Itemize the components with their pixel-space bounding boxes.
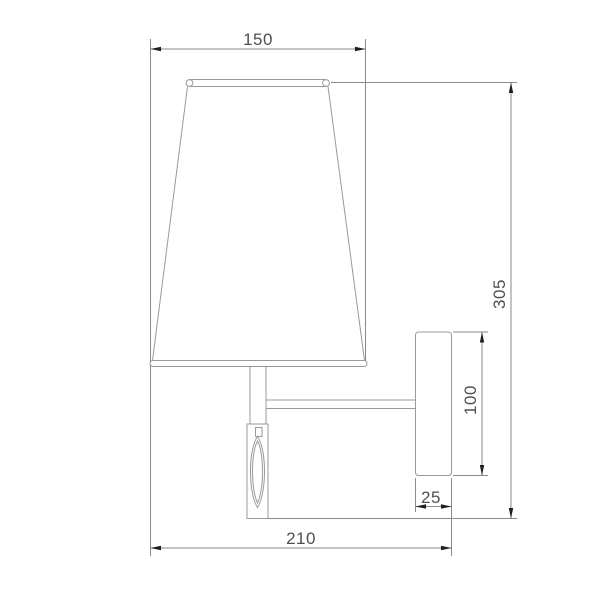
arrow-backplate-depth-right bbox=[441, 504, 452, 508]
overall-height-label: 305 bbox=[490, 279, 509, 309]
shade-diameter-label: 150 bbox=[243, 30, 273, 49]
arrow-overall-projection-left bbox=[151, 546, 162, 550]
arrow-shade-diameter-right bbox=[355, 47, 366, 51]
shade-top-right-bead bbox=[323, 80, 330, 87]
crystal-mount bbox=[256, 428, 263, 437]
arrow-overall-height-top bbox=[509, 83, 513, 94]
technical-drawing-page: 150 305 100 25 210 bbox=[0, 0, 600, 600]
dimension-arrows bbox=[151, 47, 514, 550]
overall-projection-label: 210 bbox=[286, 529, 316, 548]
dimension-lines bbox=[151, 39, 518, 556]
dimension-labels: 150 305 100 25 210 bbox=[243, 30, 509, 548]
arrow-overall-height-bottom bbox=[509, 508, 513, 519]
shade-left-side bbox=[153, 87, 188, 361]
backplate-height-label: 100 bbox=[461, 385, 480, 415]
lampshade bbox=[150, 80, 367, 367]
arrow-backplate-height-bottom bbox=[480, 465, 484, 476]
wall-plate bbox=[416, 332, 452, 476]
shade-bottom-rim bbox=[150, 361, 367, 367]
shade-top-left-bead bbox=[186, 80, 193, 87]
arrow-overall-projection-right bbox=[441, 546, 452, 550]
shade-right-side bbox=[328, 87, 365, 361]
arrow-shade-diameter-left bbox=[151, 47, 162, 51]
backplate-depth-label: 25 bbox=[421, 488, 441, 507]
wall-lamp-dimension-drawing: 150 305 100 25 210 bbox=[0, 0, 600, 600]
crystal-inner-outline bbox=[253, 441, 263, 503]
arrow-backplate-height-top bbox=[480, 332, 484, 343]
